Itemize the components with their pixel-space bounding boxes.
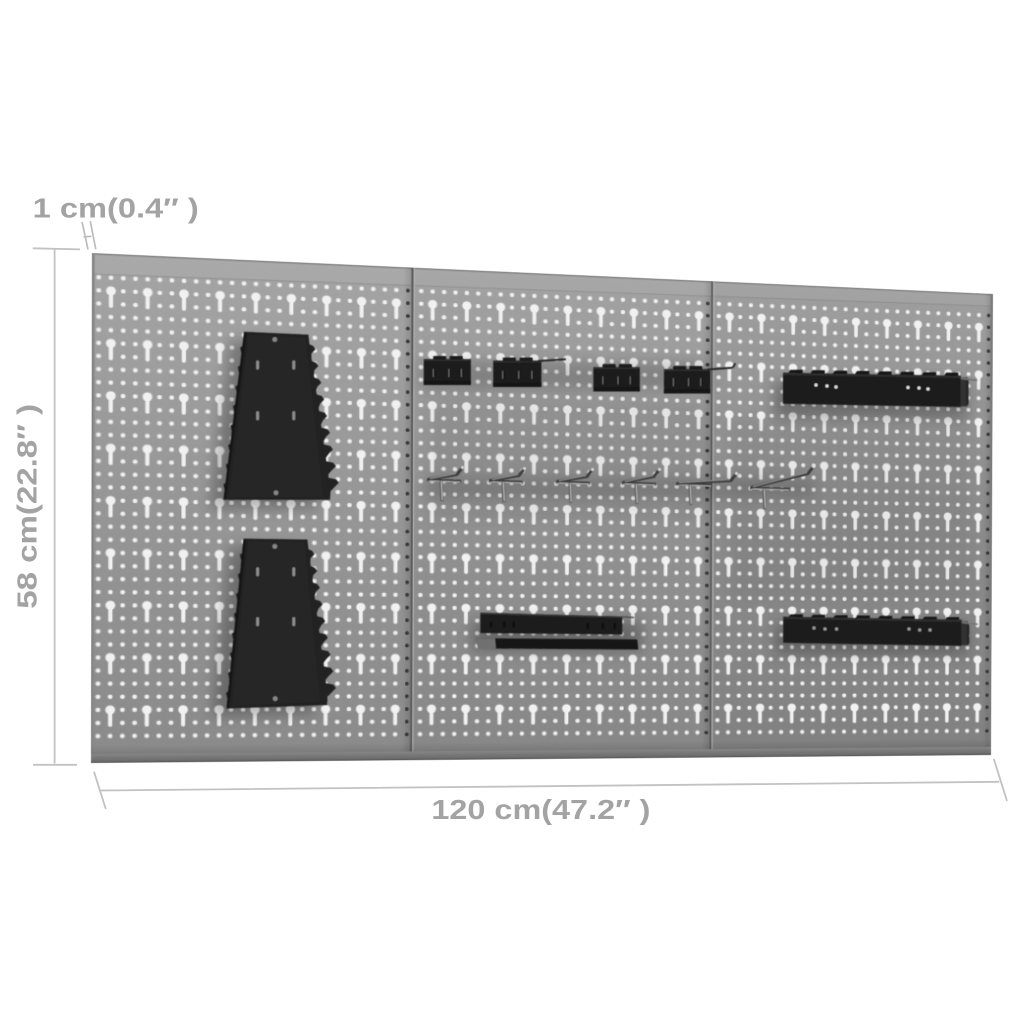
- svg-text:58 cm(22.8″ ): 58 cm(22.8″ ): [12, 404, 43, 609]
- svg-text:120 cm(47.2″ ): 120 cm(47.2″ ): [431, 794, 650, 825]
- svg-text:1 cm(0.4″ ): 1 cm(0.4″ ): [33, 193, 199, 224]
